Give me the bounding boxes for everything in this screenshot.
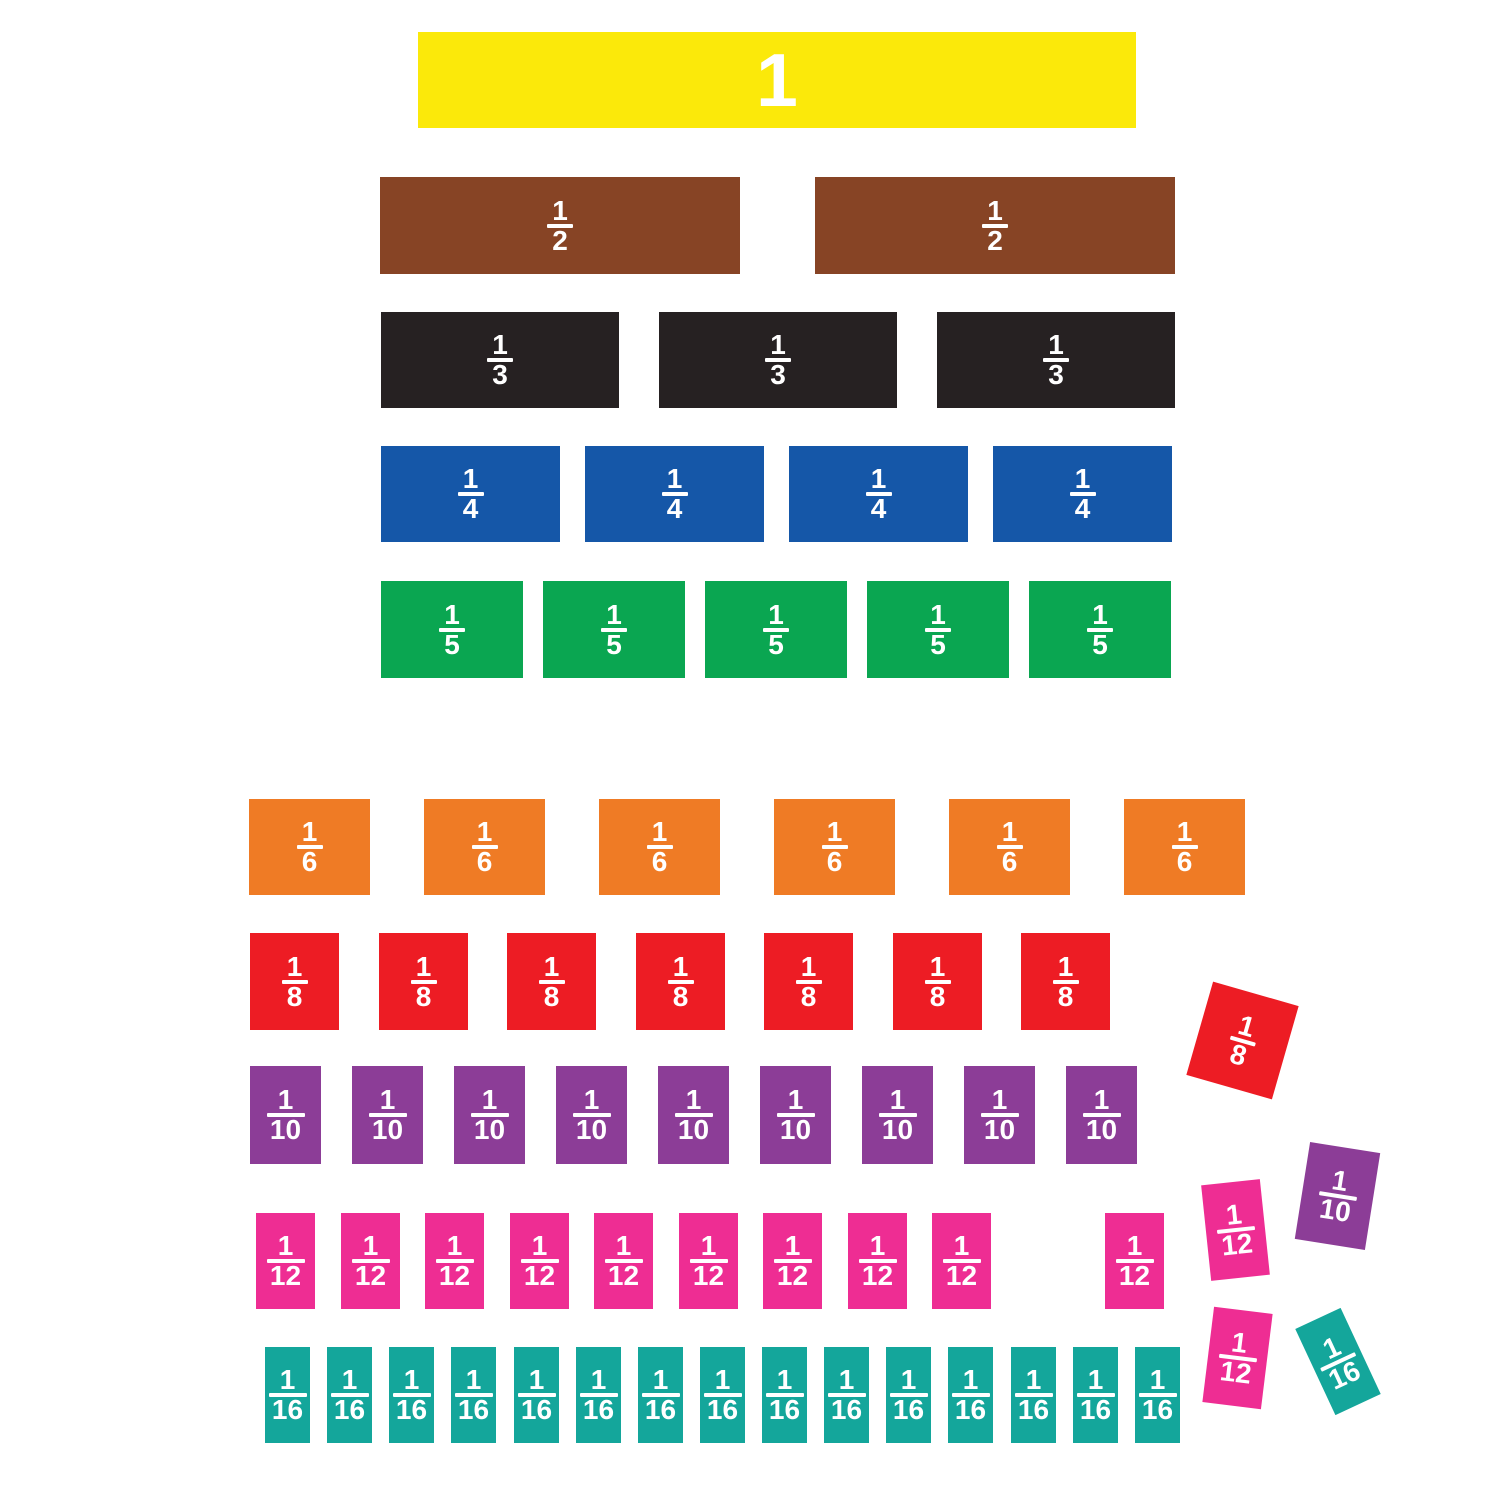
denominator: 3 (1048, 365, 1064, 385)
denominator: 10 (270, 1120, 301, 1140)
numerator: 1 (1088, 1370, 1104, 1390)
denominator: 12 (777, 1266, 808, 1286)
fraction-tile-fourths-1[interactable]: 14 (381, 446, 560, 542)
fraction-label: 110 (879, 1090, 917, 1140)
fraction-tile-twelfths-1[interactable]: 112 (256, 1213, 315, 1309)
numerator: 1 (673, 957, 689, 977)
fraction-tile-tenths-4[interactable]: 110 (556, 1066, 627, 1164)
denominator: 10 (984, 1120, 1015, 1140)
numerator: 1 (492, 335, 508, 355)
fraction-tile-twelfths-7[interactable]: 112 (763, 1213, 822, 1309)
denominator: 16 (769, 1400, 800, 1420)
numerator: 1 (444, 605, 460, 625)
numerator: 1 (404, 1370, 420, 1390)
fraction-tile-sixths-5[interactable]: 16 (949, 799, 1070, 895)
fraction-tile-thirds-3[interactable]: 13 (937, 312, 1175, 408)
fraction-tile-fifths-1[interactable]: 15 (381, 581, 523, 678)
fraction-tile-sixths-3[interactable]: 16 (599, 799, 720, 895)
fraction-label: 110 (573, 1090, 611, 1140)
fraction-label: 14 (866, 469, 892, 519)
fraction-label: 15 (439, 605, 465, 655)
fraction-label: 110 (1314, 1168, 1359, 1223)
numerator: 1 (1002, 822, 1018, 842)
fraction-tile-sixteenths-8[interactable]: 116 (700, 1347, 745, 1443)
fraction-tile-fourths-4[interactable]: 14 (993, 446, 1172, 542)
denominator: 2 (552, 231, 568, 251)
fraction-label: 116 (1015, 1370, 1053, 1420)
fraction-tile-sixths-1[interactable]: 16 (249, 799, 370, 895)
denominator: 16 (707, 1400, 738, 1420)
fraction-tile-eighths-2[interactable]: 18 (379, 933, 468, 1030)
fraction-label: 15 (1087, 605, 1113, 655)
denominator: 10 (780, 1120, 811, 1140)
denominator: 8 (416, 987, 432, 1007)
fraction-label: 16 (822, 822, 848, 872)
numerator: 1 (1330, 1170, 1349, 1192)
fraction-tile-tenths-6[interactable]: 110 (760, 1066, 831, 1164)
fraction-label: 15 (763, 605, 789, 655)
numerator: 1 (342, 1370, 358, 1390)
fraction-label: 112 (943, 1236, 981, 1286)
denominator: 12 (355, 1266, 386, 1286)
denominator: 12 (439, 1266, 470, 1286)
scattered-fraction-tile-loose-eighth[interactable]: 18 (1186, 981, 1298, 1099)
numerator: 1 (652, 822, 668, 842)
fraction-tile-eighths-1[interactable]: 18 (250, 933, 339, 1030)
fraction-tile-eighths-6[interactable]: 18 (893, 933, 982, 1030)
numerator: 1 (653, 1370, 669, 1390)
denominator: 2 (987, 231, 1003, 251)
fraction-label: 116 (580, 1370, 618, 1420)
numerator: 1 (785, 1236, 801, 1256)
denominator: 16 (521, 1400, 552, 1420)
numerator: 1 (992, 1090, 1008, 1110)
fraction-tile-sixteenths-1[interactable]: 116 (265, 1347, 310, 1443)
fraction-label: 16 (472, 822, 498, 872)
fraction-label: 116 (455, 1370, 493, 1420)
denominator: 12 (1220, 1233, 1253, 1256)
numerator: 1 (552, 201, 568, 221)
fraction-tile-sixteenths-13[interactable]: 116 (1011, 1347, 1056, 1443)
numerator: 1 (1094, 1090, 1110, 1110)
numerator: 1 (715, 1370, 731, 1390)
numerator: 1 (447, 1236, 463, 1256)
denominator: 5 (768, 635, 784, 655)
fraction-label: 14 (662, 469, 688, 519)
fraction-tile-tenths-2[interactable]: 110 (352, 1066, 423, 1164)
fraction-tile-sixteenths-4[interactable]: 116 (451, 1347, 496, 1443)
denominator: 12 (693, 1266, 724, 1286)
fraction-label: 16 (647, 822, 673, 872)
fraction-label: 116 (269, 1370, 307, 1420)
numerator: 1 (901, 1370, 917, 1390)
fraction-tile-sixteenths-12[interactable]: 116 (948, 1347, 993, 1443)
fraction-label: 18 (1223, 1012, 1262, 1067)
fraction-label: 12 (982, 201, 1008, 251)
fraction-label: 112 (1116, 1236, 1154, 1286)
fraction-label: 116 (828, 1370, 866, 1420)
denominator: 4 (463, 499, 479, 519)
numerator: 1 (871, 469, 887, 489)
numerator: 1 (1058, 957, 1074, 977)
numerator: 1 (477, 822, 493, 842)
fraction-label: 110 (267, 1090, 305, 1140)
fraction-tile-sixths-2[interactable]: 16 (424, 799, 545, 895)
fraction-label: 116 (952, 1370, 990, 1420)
numerator: 1 (839, 1370, 855, 1390)
denominator: 16 (955, 1400, 986, 1420)
denominator: 16 (1142, 1400, 1173, 1420)
denominator: 16 (396, 1400, 427, 1420)
numerator: 1 (416, 957, 432, 977)
numerator: 1 (768, 605, 784, 625)
fraction-label: 16 (1172, 822, 1198, 872)
fraction-tile-thirds-1[interactable]: 13 (381, 312, 619, 408)
fraction-label: 116 (1139, 1370, 1177, 1420)
fraction-label: 112 (605, 1236, 643, 1286)
fraction-tile-fourths-3[interactable]: 14 (789, 446, 968, 542)
fraction-label: 116 (890, 1370, 928, 1420)
fraction-tile-twelfths-10[interactable]: 112 (1105, 1213, 1164, 1309)
numerator: 1 (1092, 605, 1108, 625)
denominator: 3 (492, 365, 508, 385)
denominator: 12 (608, 1266, 639, 1286)
fraction-tile-twelfths-2[interactable]: 112 (341, 1213, 400, 1309)
numerator: 1 (584, 1090, 600, 1110)
denominator: 10 (576, 1120, 607, 1140)
fraction-tile-tenths-1[interactable]: 110 (250, 1066, 321, 1164)
fraction-label: 112 (521, 1236, 559, 1286)
denominator: 6 (1177, 852, 1193, 872)
fraction-tile-sixteenths-6[interactable]: 116 (576, 1347, 621, 1443)
numerator: 1 (770, 335, 786, 355)
fraction-tile-halves-2[interactable]: 12 (815, 177, 1175, 274)
numerator: 1 (667, 469, 683, 489)
numerator: 1 (686, 1090, 702, 1110)
denominator: 5 (444, 635, 460, 655)
fraction-tile-twelfths-9[interactable]: 112 (932, 1213, 991, 1309)
fraction-label: 14 (1070, 469, 1096, 519)
numerator: 1 (1127, 1236, 1143, 1256)
denominator: 8 (930, 987, 946, 1007)
fraction-label: 112 (267, 1236, 305, 1286)
denominator: 12 (524, 1266, 555, 1286)
numerator: 1 (278, 1236, 294, 1256)
denominator: 3 (770, 365, 786, 385)
denominator: 6 (1002, 852, 1018, 872)
whole-label: 1 (756, 43, 798, 118)
numerator: 1 (870, 1236, 886, 1256)
denominator: 16 (334, 1400, 365, 1420)
numerator: 1 (380, 1090, 396, 1110)
denominator: 12 (1119, 1266, 1150, 1286)
fraction-tiles-board: 1121213131314141414151515151516161616161… (0, 0, 1500, 1500)
fraction-label: 18 (282, 957, 308, 1007)
numerator: 1 (1048, 335, 1064, 355)
denominator: 8 (1228, 1043, 1248, 1067)
fraction-label: 112 (1213, 1203, 1256, 1257)
fraction-label: 13 (765, 335, 791, 385)
numerator: 1 (616, 1236, 632, 1256)
numerator: 1 (954, 1236, 970, 1256)
fraction-label: 116 (704, 1370, 742, 1420)
denominator: 10 (1318, 1199, 1352, 1224)
fraction-tile-eighths-7[interactable]: 18 (1021, 933, 1110, 1030)
denominator: 10 (474, 1120, 505, 1140)
fraction-label: 116 (393, 1370, 431, 1420)
numerator: 1 (930, 605, 946, 625)
fraction-label: 13 (1043, 335, 1069, 385)
fraction-tile-fifths-3[interactable]: 15 (705, 581, 847, 678)
fraction-tile-tenths-9[interactable]: 110 (1066, 1066, 1137, 1164)
fraction-label: 116 (331, 1370, 369, 1420)
numerator: 1 (801, 957, 817, 977)
denominator: 16 (583, 1400, 614, 1420)
fraction-tile-twelfths-6[interactable]: 112 (679, 1213, 738, 1309)
fraction-tile-twelfths-4[interactable]: 112 (510, 1213, 569, 1309)
denominator: 10 (882, 1120, 913, 1140)
fraction-tile-thirds-2[interactable]: 13 (659, 312, 897, 408)
scattered-fraction-tile-loose-twelfth-a[interactable]: 112 (1201, 1179, 1270, 1281)
numerator: 1 (482, 1090, 498, 1110)
denominator: 12 (946, 1266, 977, 1286)
fraction-tile-sixteenths-5[interactable]: 116 (514, 1347, 559, 1443)
fraction-label: 116 (642, 1370, 680, 1420)
denominator: 16 (272, 1400, 303, 1420)
fraction-tile-fifths-2[interactable]: 15 (543, 581, 685, 678)
fraction-label: 110 (675, 1090, 713, 1140)
fraction-label: 18 (796, 957, 822, 1007)
numerator: 1 (890, 1090, 906, 1110)
numerator: 1 (287, 957, 303, 977)
fraction-tile-sixteenths-10[interactable]: 116 (824, 1347, 869, 1443)
fraction-label: 15 (925, 605, 951, 655)
fraction-tile-fourths-2[interactable]: 14 (585, 446, 764, 542)
fraction-label: 15 (601, 605, 627, 655)
denominator: 8 (1058, 987, 1074, 1007)
numerator: 1 (280, 1370, 296, 1390)
numerator: 1 (532, 1236, 548, 1256)
numerator: 1 (1075, 469, 1091, 489)
fraction-tile-twelfths-8[interactable]: 112 (848, 1213, 907, 1309)
denominator: 12 (270, 1266, 301, 1286)
fraction-label: 110 (471, 1090, 509, 1140)
numerator: 1 (363, 1236, 379, 1256)
numerator: 1 (1026, 1370, 1042, 1390)
fraction-tile-sixteenths-15[interactable]: 116 (1135, 1347, 1180, 1443)
fraction-tile-twelfths-3[interactable]: 112 (425, 1213, 484, 1309)
fraction-tile-whole-1[interactable]: 1 (418, 32, 1136, 128)
denominator: 16 (831, 1400, 862, 1420)
fraction-label: 12 (547, 201, 573, 251)
denominator: 16 (458, 1400, 489, 1420)
numerator: 1 (963, 1370, 979, 1390)
fraction-label: 116 (518, 1370, 556, 1420)
fraction-label: 18 (411, 957, 437, 1007)
numerator: 1 (529, 1370, 545, 1390)
fraction-label: 16 (297, 822, 323, 872)
denominator: 8 (801, 987, 817, 1007)
fraction-tile-eighths-4[interactable]: 18 (636, 933, 725, 1030)
numerator: 1 (788, 1090, 804, 1110)
fraction-label: 112 (1215, 1331, 1259, 1385)
fraction-tile-tenths-5[interactable]: 110 (658, 1066, 729, 1164)
denominator: 4 (871, 499, 887, 519)
fraction-label: 116 (1310, 1330, 1366, 1391)
numerator: 1 (544, 957, 560, 977)
fraction-label: 112 (690, 1236, 728, 1286)
fraction-tile-halves-1[interactable]: 12 (380, 177, 740, 274)
fraction-label: 110 (777, 1090, 815, 1140)
denominator: 4 (1075, 499, 1091, 519)
fraction-tile-sixteenths-7[interactable]: 116 (638, 1347, 683, 1443)
numerator: 1 (591, 1370, 607, 1390)
fraction-label: 18 (1053, 957, 1079, 1007)
denominator: 6 (827, 852, 843, 872)
fraction-label: 14 (458, 469, 484, 519)
fraction-tile-sixteenths-2[interactable]: 116 (327, 1347, 372, 1443)
fraction-label: 112 (859, 1236, 897, 1286)
fraction-tile-eighths-3[interactable]: 18 (507, 933, 596, 1030)
denominator: 8 (544, 987, 560, 1007)
denominator: 10 (372, 1120, 403, 1140)
numerator: 1 (777, 1370, 793, 1390)
denominator: 8 (673, 987, 689, 1007)
denominator: 16 (893, 1400, 924, 1420)
denominator: 8 (287, 987, 303, 1007)
scattered-fraction-tile-loose-twelfth-b[interactable]: 112 (1202, 1307, 1272, 1409)
fraction-tile-fifths-4[interactable]: 15 (867, 581, 1009, 678)
denominator: 4 (667, 499, 683, 519)
denominator: 16 (1018, 1400, 1049, 1420)
fraction-label: 18 (668, 957, 694, 1007)
fraction-label: 110 (1083, 1090, 1121, 1140)
fraction-tile-tenths-3[interactable]: 110 (454, 1066, 525, 1164)
fraction-tile-sixteenths-3[interactable]: 116 (389, 1347, 434, 1443)
numerator: 1 (827, 822, 843, 842)
denominator: 5 (1092, 635, 1108, 655)
denominator: 12 (862, 1266, 893, 1286)
fraction-tile-sixteenths-14[interactable]: 116 (1073, 1347, 1118, 1443)
fraction-label: 112 (436, 1236, 474, 1286)
numerator: 1 (1177, 822, 1193, 842)
numerator: 1 (302, 822, 318, 842)
denominator: 16 (1080, 1400, 1111, 1420)
numerator: 1 (987, 201, 1003, 221)
numerator: 1 (1150, 1370, 1166, 1390)
numerator: 1 (606, 605, 622, 625)
fraction-tile-sixteenths-11[interactable]: 116 (886, 1347, 931, 1443)
fraction-tile-sixteenths-9[interactable]: 116 (762, 1347, 807, 1443)
scattered-fraction-tile-loose-sixteenth[interactable]: 116 (1295, 1307, 1380, 1414)
denominator: 6 (652, 852, 668, 872)
fraction-tile-tenths-8[interactable]: 110 (964, 1066, 1035, 1164)
denominator: 10 (1086, 1120, 1117, 1140)
numerator: 1 (1320, 1335, 1343, 1360)
fraction-label: 116 (766, 1370, 804, 1420)
denominator: 10 (678, 1120, 709, 1140)
denominator: 16 (645, 1400, 676, 1420)
fraction-tile-fifths-5[interactable]: 15 (1029, 581, 1171, 678)
fraction-tile-twelfths-5[interactable]: 112 (594, 1213, 653, 1309)
denominator: 6 (477, 852, 493, 872)
fraction-label: 16 (997, 822, 1023, 872)
numerator: 1 (1230, 1332, 1248, 1354)
fraction-label: 110 (369, 1090, 407, 1140)
numerator: 1 (701, 1236, 717, 1256)
denominator: 12 (1218, 1361, 1251, 1385)
fraction-label: 18 (925, 957, 951, 1007)
numerator: 1 (1236, 1014, 1256, 1038)
fraction-label: 110 (981, 1090, 1019, 1140)
numerator: 1 (278, 1090, 294, 1110)
fraction-label: 112 (352, 1236, 390, 1286)
denominator: 16 (1326, 1359, 1363, 1390)
fraction-tile-sixths-4[interactable]: 16 (774, 799, 895, 895)
numerator: 1 (463, 469, 479, 489)
numerator: 1 (466, 1370, 482, 1390)
fraction-label: 18 (539, 957, 565, 1007)
fraction-label: 112 (774, 1236, 812, 1286)
fraction-label: 116 (1077, 1370, 1115, 1420)
fraction-tile-tenths-7[interactable]: 110 (862, 1066, 933, 1164)
fraction-tile-sixths-6[interactable]: 16 (1124, 799, 1245, 895)
numerator: 1 (1225, 1204, 1243, 1226)
scattered-fraction-tile-loose-tenth[interactable]: 110 (1294, 1142, 1379, 1250)
fraction-tile-eighths-5[interactable]: 18 (764, 933, 853, 1030)
denominator: 6 (302, 852, 318, 872)
denominator: 5 (930, 635, 946, 655)
fraction-label: 13 (487, 335, 513, 385)
denominator: 5 (606, 635, 622, 655)
numerator: 1 (930, 957, 946, 977)
